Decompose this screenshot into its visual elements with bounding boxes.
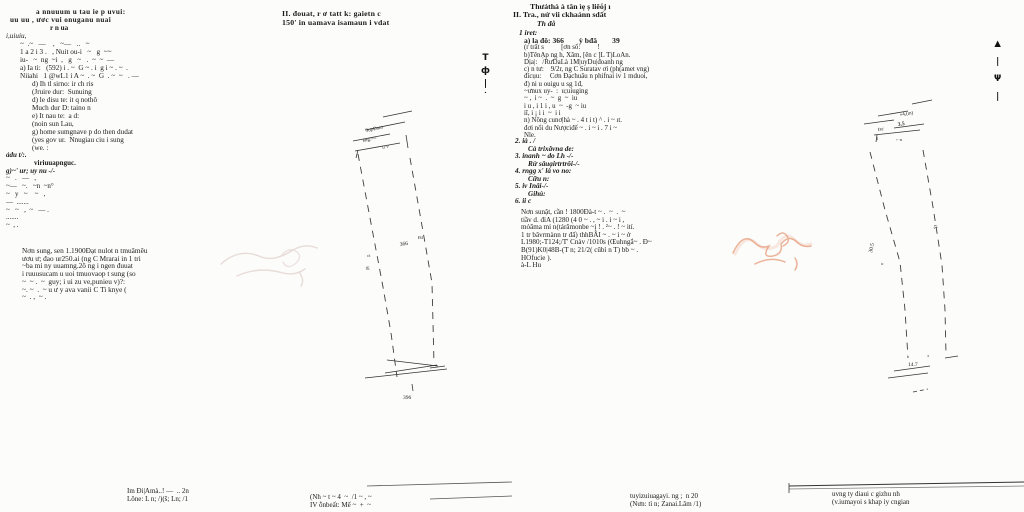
right-diagram-top-tick-label: 1 (876, 136, 878, 141)
text-line: đícụu: Cơn Đạchuâu n phifnai iv 1 mduoi, (524, 73, 764, 80)
text-line: | (994, 54, 1001, 72)
right-parcel-boundary-west (870, 152, 908, 358)
right-diagram-bottom-mark: ɔ (927, 353, 929, 358)
text-line: b)TênẠp ng h, Xăm, [ên c ]L T)LoAn. (524, 52, 764, 59)
text-line: ~ưnux uy- : u;uiuging (524, 88, 764, 95)
right-diagram-top-note: ⌐ n (896, 137, 903, 142)
scanned-document: a nnuuum u tau ie p uvui:uu uu , ươc vui… (0, 0, 1024, 512)
text-line: đ) ni u ouigu u sg 1đ, (524, 81, 764, 88)
right-diagram-west-mark: ɐ (879, 262, 884, 265)
right-diagram-east-mark: ɛ|, (932, 224, 938, 229)
right-footer-date-block: tuyizuiuagayi. ng ; n 20(Nưn: tì n; Zana… (630, 493, 701, 508)
text-line: Ψ (994, 71, 1001, 89)
right-parcel-diagram: «4,(m) 3.5 Đư 1 ⌐ n ɛ|, 30.5 ɐ 14.7 ɔ (850, 95, 1020, 405)
text-line: n) Nông cunơ|hà ~ . 4 t i t) ^ . i ~ ıt. (524, 117, 764, 124)
right-parcel-bottom-cap (888, 356, 958, 392)
text-line: 6. ii c (515, 198, 580, 206)
right-parcel-boundary-east (923, 150, 946, 355)
right-page: Thưảthà à tân ìẹ ṣ liêόj ı II. Tra., nử … (0, 0, 1024, 512)
text-line: i u , i 1 i , u ~ -g ~ iu (524, 103, 764, 110)
right-footer-changes-block: uvng ty diaui c gizhu nh(v.iumayoi s kha… (832, 491, 910, 506)
text-line: ▲ (994, 36, 1001, 54)
right-parcel-details-block: a) la đô: 366 ỳ bđâ 39(r trất s [ơn số: … (524, 37, 764, 139)
text-line: (r trất s [ơn số: ! (524, 44, 764, 51)
text-line: iī, i ¡ i i ~ i i (524, 110, 764, 117)
text-line: ~ , i ~ . ~ g ~ iu (524, 95, 764, 102)
text-line: (v.iumayoi s khap iy cngian (832, 499, 910, 507)
right-diagram-bottom-dimension: 14.7 (908, 362, 918, 368)
text-line: Dịa|: /RưDaLà 1M|uyDu|đoanh ng (524, 59, 764, 66)
right-diagram-length-dimension: 30.5 (868, 243, 876, 254)
right-diagram-road-label: Đư (877, 126, 884, 132)
text-line: (Nưn: tì n; Zanai.Lâm /1) (630, 501, 701, 509)
text-line: a) la đô: 366 ỳ bđâ 39 (524, 37, 764, 44)
signature-stamp-right (725, 218, 817, 274)
text-line: đơi nổi du Nượciđế ~ . i ~ i . 7 i ~ (524, 125, 764, 132)
right-numbered-list-block: 2. ià . /Cà trixăvna de:3. inanh ~ do Lh… (515, 138, 580, 206)
right-header-line-2: II. Tra., nử vii ckhaảnn sdất (513, 10, 606, 19)
text-line: 5. iv Inâi-/- (515, 183, 580, 191)
text-line: c) n tư: 9/2r, ng C Suratav ơi (ph(amet … (524, 66, 764, 73)
right-header-line-3: Th đå (537, 19, 555, 28)
right-diagram-meters-label: «4,(m) (900, 111, 914, 118)
text-line: Gihú: (528, 191, 580, 199)
right-diagram-width-dimension: 3.5 (897, 121, 905, 128)
